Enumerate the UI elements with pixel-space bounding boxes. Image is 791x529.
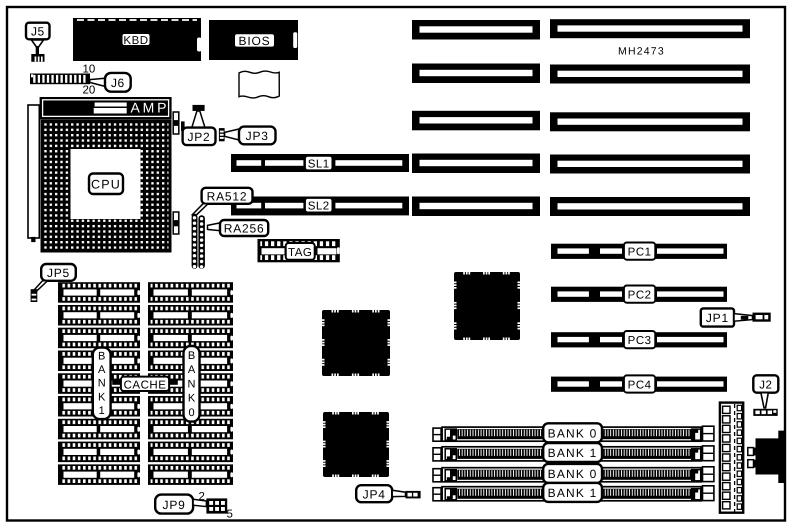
svg-text:CACHE: CACHE [124, 379, 167, 391]
svg-text:A: A [98, 364, 106, 376]
svg-text:BANK 0: BANK 0 [548, 467, 598, 481]
svg-text:N: N [98, 378, 106, 390]
svg-text:MH2473: MH2473 [618, 46, 665, 58]
svg-text:BANK 1: BANK 1 [548, 486, 598, 500]
svg-text:1: 1 [99, 405, 105, 417]
svg-text:AMP: AMP [131, 100, 170, 116]
svg-text:B: B [188, 350, 195, 362]
svg-text:CPU: CPU [91, 178, 121, 192]
svg-text:TAG: TAG [288, 247, 312, 259]
svg-text:JP5: JP5 [47, 266, 70, 280]
svg-text:K: K [98, 391, 106, 403]
svg-text:10: 10 [83, 64, 96, 76]
svg-text:J2: J2 [759, 380, 772, 392]
svg-text:RA512: RA512 [207, 190, 248, 204]
svg-text:0: 0 [188, 407, 194, 419]
svg-text:B: B [98, 351, 105, 363]
svg-text:2: 2 [199, 491, 205, 503]
svg-text:J5: J5 [31, 25, 45, 39]
svg-text:K: K [188, 393, 196, 405]
svg-text:5: 5 [227, 509, 233, 521]
svg-text:PC1: PC1 [628, 247, 652, 259]
svg-text:PC3: PC3 [628, 335, 652, 347]
svg-text:A: A [188, 364, 196, 376]
svg-text:J6: J6 [111, 76, 125, 90]
svg-text:KBD: KBD [123, 35, 148, 47]
svg-text:BIOS: BIOS [239, 34, 271, 48]
svg-text:JP3: JP3 [246, 129, 269, 143]
svg-text:JP2: JP2 [187, 130, 210, 144]
svg-text:PC2: PC2 [628, 290, 652, 302]
svg-text:JP1: JP1 [706, 311, 729, 325]
svg-text:20: 20 [83, 85, 96, 97]
svg-text:PC4: PC4 [628, 380, 652, 392]
svg-text:SL2: SL2 [308, 201, 330, 213]
svg-text:N: N [188, 378, 196, 390]
svg-text:BANK 1: BANK 1 [548, 446, 598, 460]
svg-text:SL1: SL1 [308, 159, 330, 171]
svg-text:RA256: RA256 [224, 222, 265, 236]
svg-text:JP9: JP9 [163, 498, 186, 512]
svg-text:BANK 0: BANK 0 [548, 427, 598, 441]
svg-text:JP4: JP4 [363, 487, 386, 501]
